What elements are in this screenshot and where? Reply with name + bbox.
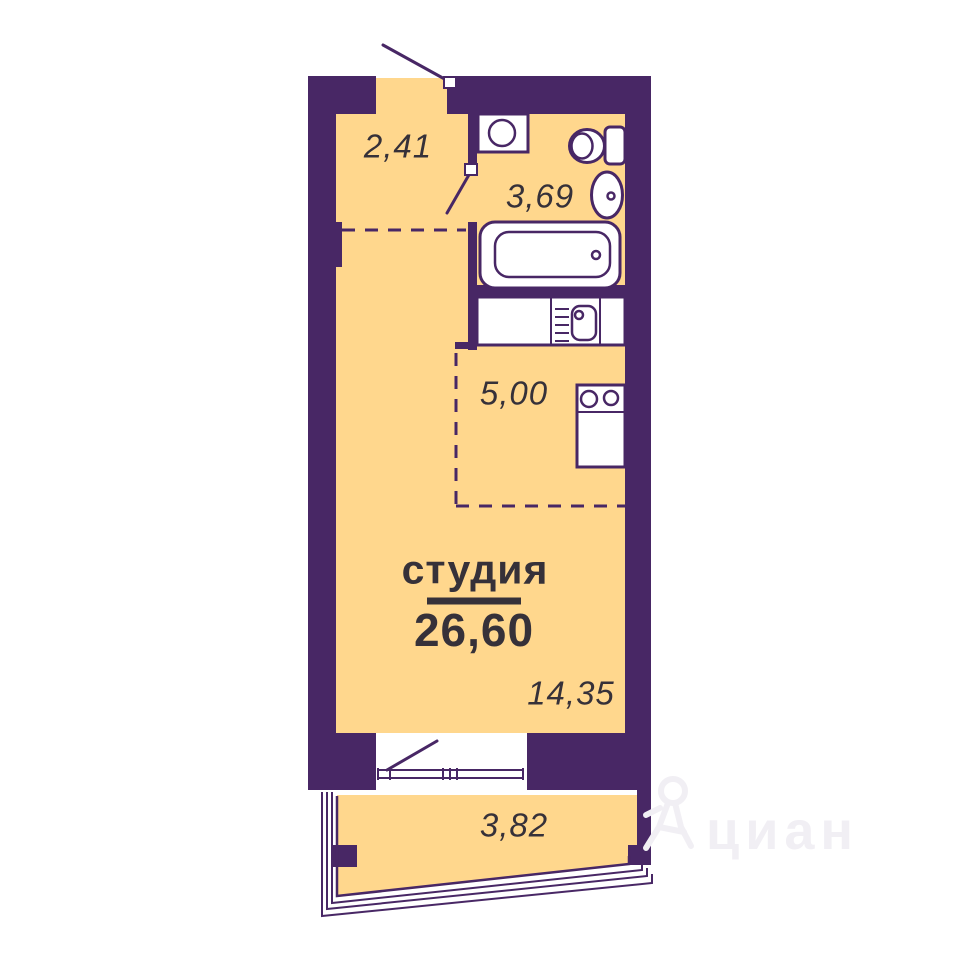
wall-left-pilaster	[334, 222, 342, 267]
toilet	[570, 127, 626, 164]
watermark-logo-icon	[646, 779, 691, 848]
wall-top-right	[447, 76, 651, 114]
bathroom-area-label: 3,69	[506, 180, 574, 213]
floorplan-canvas: 2,41 3,69 5,00 студия 26,60 14,35 3,82 ц…	[0, 0, 960, 960]
wall-counter-return	[455, 342, 477, 349]
hall-area-label: 2,41	[364, 130, 432, 163]
watermark-text: циан	[706, 800, 859, 862]
plan-title: студия	[402, 550, 549, 591]
kitchen-area-label: 5,00	[480, 377, 548, 410]
entrance-door-hinge	[444, 77, 456, 88]
bathroom-door-hinge	[465, 164, 477, 175]
wall-bottom-left-block	[308, 733, 376, 790]
wall-bottom-right-block	[527, 733, 651, 790]
balcony-door-swing	[387, 741, 437, 770]
balcony-area-label: 3,82	[480, 809, 548, 842]
bathroom-sink	[592, 172, 623, 218]
washing-machine	[478, 114, 528, 152]
wall-right	[625, 76, 651, 790]
wall-bathroom-partition-upper	[468, 112, 477, 166]
living-area-label: 14,35	[527, 677, 615, 710]
balcony-window-assembly	[378, 741, 523, 780]
total-area-label: 26,60	[414, 607, 534, 653]
wall-balcony-right	[637, 790, 651, 865]
kitchen-counter	[477, 297, 625, 345]
stove	[577, 385, 625, 467]
bathtub	[480, 222, 620, 288]
entrance-door-swing	[383, 45, 450, 82]
wall-left	[308, 76, 336, 790]
